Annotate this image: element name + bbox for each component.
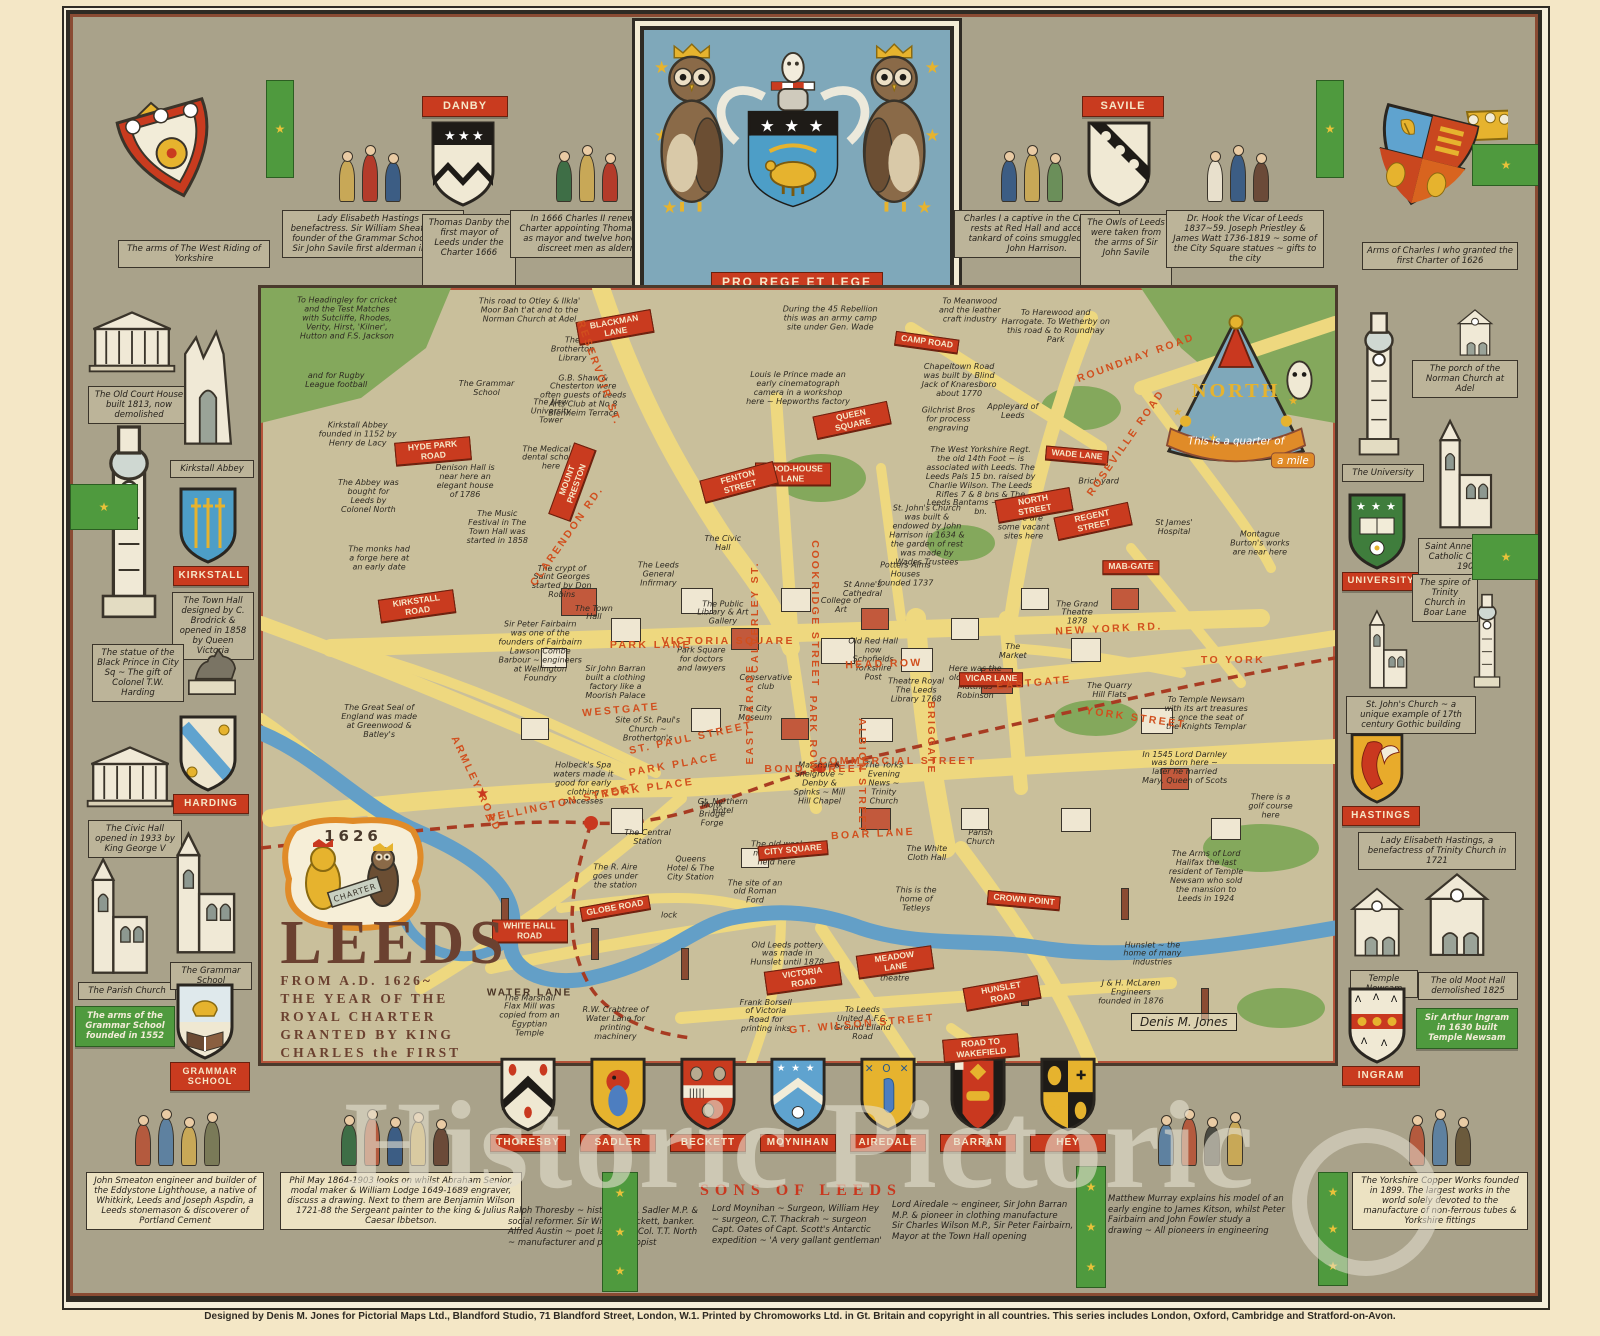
map-note: The Grammar School <box>459 380 515 398</box>
building-block <box>861 608 889 630</box>
svg-text:✚: ✚ <box>1051 1100 1062 1115</box>
west-riding-arms <box>110 92 240 234</box>
map-note: To Headingley for cricket and the Test M… <box>295 297 399 342</box>
harding-shield <box>177 714 239 792</box>
border-band: The arms of The West Riding of Yorkshire… <box>70 14 1538 1296</box>
map-note: Frank Borsell of Victoria Road for print… <box>735 999 797 1035</box>
svg-text:Λ: Λ <box>1373 993 1380 1003</box>
map-note: This road to Otley & Ilkla' Moor Bah t'a… <box>474 298 586 325</box>
map-note: The Market <box>991 643 1035 661</box>
imprint-line: Designed by Denis M. Jones for Pictorial… <box>204 1311 1395 1322</box>
building-block <box>681 948 689 980</box>
kirkstall-shield <box>177 486 239 564</box>
parish-church-drawing <box>78 852 158 982</box>
map-note: To Harewood and Harrogate. To Wetherby o… <box>1000 309 1112 345</box>
copper-works-caption: The Yorkshire Copper Works founded in 18… <box>1352 1172 1528 1230</box>
harding-banner: HARDING <box>173 794 249 814</box>
street-label: HEAD ROW <box>845 657 923 672</box>
map-note: St. John's Church was built & endowed by… <box>886 505 968 568</box>
moot-hall-caption: The old Moot Hall demolished 1825 <box>1418 972 1518 1000</box>
building-block <box>1121 888 1129 920</box>
map-note: St James' Hospital <box>1146 519 1202 537</box>
owl-supporter-left <box>662 44 722 211</box>
black-prince-caption: The statue of the Black Prince in City S… <box>92 644 184 702</box>
map-subtitle-line: CHARLES the FIRST <box>280 1044 508 1062</box>
leeds-crest-panel: ★ ★ ★ ★ ★ ★ ★★★ <box>640 26 954 292</box>
adel-porch-drawing <box>1446 304 1504 358</box>
svg-text:✕: ✕ <box>865 1062 874 1075</box>
charles-captive-figures <box>962 106 1102 202</box>
svg-text:★: ★ <box>809 117 824 136</box>
svg-text:|||||: ||||| <box>689 1088 705 1099</box>
map-note: Hunslet ~ the home of many industries <box>1121 941 1183 968</box>
map-note: and for Rugby League football <box>301 372 371 390</box>
map-note: The Leeds General Infirmary <box>632 561 684 588</box>
building-block <box>781 718 809 740</box>
map-subtitle-line: THE YEAR OF THE <box>280 990 508 1008</box>
map-note: The Central Station <box>623 829 673 847</box>
green-tab: ★ <box>70 484 138 530</box>
owl-supporter-right <box>864 44 924 211</box>
green-tab: ★ <box>266 80 294 178</box>
map-note: The Public Library & Art Gallery <box>692 600 754 627</box>
son-shield-banner: HEY <box>1030 1134 1106 1152</box>
map-note: The Arms of Lord Halifax the last reside… <box>1165 850 1247 904</box>
smeaton-caption: John Smeaton engineer and builder of the… <box>86 1172 264 1230</box>
map-note: Gilchrist Bros for process engraving <box>920 406 976 433</box>
temple-newsam-drawing <box>1348 870 1406 970</box>
svg-text:★: ★ <box>777 1063 786 1074</box>
svg-text:✕: ✕ <box>900 1062 909 1075</box>
map-note: The Great Seal of England was made at Gr… <box>340 704 418 740</box>
svg-text:★: ★ <box>458 129 470 144</box>
svg-text:Λ: Λ <box>1361 1037 1368 1047</box>
son-shield-banner: THORESBY <box>490 1134 566 1152</box>
artists-figures <box>285 1066 505 1166</box>
svg-text:★: ★ <box>472 129 484 144</box>
street-label: COMMERCIAL STREET <box>819 755 976 767</box>
green-star-tab: ★★★ <box>1318 1172 1348 1286</box>
map-note: The White Cloth Hall <box>901 845 953 863</box>
savile-shield <box>1086 120 1152 208</box>
st-johns-drawing <box>1352 606 1422 694</box>
map-note: This is the home of Tetleys <box>891 887 941 914</box>
son-shield-sadler: SADLER <box>580 1056 656 1152</box>
svg-text:Λ: Λ <box>1355 995 1362 1005</box>
danby-caption: Thomas Danby the first mayor of Leeds un… <box>422 214 516 286</box>
star-marker: ★ <box>476 784 489 802</box>
statues-caption: Dr. Hook the Vicar of Leeds 1837~59. Jos… <box>1166 210 1324 268</box>
st-annes-drawing <box>1422 414 1506 536</box>
son-shield-barran: BARRAN <box>940 1056 1016 1152</box>
map-subtitle-line: GRANTED BY KING <box>280 1026 508 1044</box>
svg-text:★: ★ <box>806 1063 815 1074</box>
son-shield-airedale: ✕O✕AIREDALE <box>850 1056 926 1152</box>
danby-shield: ★★★ <box>430 120 496 208</box>
map-note: Louis le Prince made an early cinematogr… <box>746 371 850 407</box>
svg-text:★: ★ <box>760 117 775 136</box>
moot-hall-drawing <box>1422 852 1492 972</box>
map-note: Montague Burton's works are near here <box>1226 530 1294 557</box>
street-label: TO YORK <box>1201 654 1265 666</box>
ingram-ribbon: Sir Arthur Ingram in 1630 built Temple N… <box>1416 1008 1518 1049</box>
svg-text:★: ★ <box>1356 500 1366 513</box>
st-johns-caption: St. John's Church ~ a unique example of … <box>1346 696 1476 734</box>
son-shield-banner: AIREDALE <box>850 1134 926 1152</box>
svg-text:O: O <box>882 1062 890 1075</box>
civic-hall-drawing <box>84 736 176 816</box>
son-shield-beckett: |||||BECKETT <box>670 1056 746 1152</box>
svg-text:★: ★ <box>791 1063 800 1074</box>
map-note: Sir Peter Fairbairn was one of the found… <box>498 621 582 684</box>
green-tab: ★ <box>1472 534 1538 580</box>
svg-text:★: ★ <box>444 129 456 144</box>
west-riding-caption: The arms of The West Riding of Yorkshire <box>118 240 270 268</box>
murray-column: Matthew Murray explains his model of an … <box>1108 1194 1286 1237</box>
map-note: The Music Festival in The Town Hall was … <box>462 510 532 546</box>
grammar-school-drawing <box>166 826 242 962</box>
building-block <box>781 588 811 612</box>
map-note: The site of an old Roman Ford <box>727 879 783 906</box>
benefactors-figures <box>295 106 445 202</box>
green-tab: ★ <box>1316 80 1344 178</box>
svg-text:Λ: Λ <box>1381 1039 1388 1049</box>
son-shield-thoresby: THORESBY <box>490 1056 566 1152</box>
building-block <box>961 808 989 830</box>
artist-signature: Denis M. Jones <box>1131 1013 1237 1031</box>
map-note: J & H. McLaren Engineers founded in 1876 <box>1095 980 1167 1007</box>
hastings-shield <box>1346 732 1408 804</box>
map-note: Sir John Barran built a clothing factory… <box>584 665 646 701</box>
grammar-school-shield <box>174 982 236 1060</box>
green-tab: ★ <box>1472 144 1538 186</box>
map-note: The Civic Hall <box>700 535 746 553</box>
map-note: Chapeltown Road was built by Blind Jack … <box>918 363 1000 399</box>
svg-text:NORTH: NORTH <box>1192 380 1281 402</box>
svg-text:★: ★ <box>1386 500 1396 513</box>
map-note: Gt. Northern Hotel <box>695 798 751 816</box>
building-block <box>1071 638 1101 662</box>
map-note: Park Square for doctors and lawyers <box>674 647 728 674</box>
svg-text:This is a quarter of: This is a quarter of <box>1188 436 1286 448</box>
son-shield-banner: BECKETT <box>670 1134 746 1152</box>
svg-text:★: ★ <box>1371 500 1381 513</box>
map-note: Parish Church <box>959 829 1003 847</box>
map-title-block: LEEDS FROM A.D. 1626~THE YEAR OF THEROYA… <box>280 916 508 1063</box>
university-shield: ★★★ <box>1346 492 1408 570</box>
map-title: LEEDS <box>280 916 508 972</box>
map-note: College of Art <box>819 597 863 615</box>
phil-may-caption: Phil May 1864-1903 looks on whilst Abrah… <box>280 1172 522 1230</box>
building-block <box>521 718 549 740</box>
building-block <box>1111 588 1139 610</box>
danby-banner: DANBY <box>422 96 508 117</box>
svg-text:★: ★ <box>1173 406 1183 419</box>
stonemasons-figures <box>92 1076 262 1166</box>
building-block <box>1021 588 1049 610</box>
charles-arms-caption: Arms of Charles I who granted the first … <box>1362 242 1518 270</box>
street-label: COOKRIDGE STREET <box>809 540 821 688</box>
green-star-tab: ★★★ <box>602 1172 638 1292</box>
ingram-shield: ΛΛΛΛΛ <box>1346 986 1408 1064</box>
leeds-coat-of-arms: ★★★ <box>647 36 939 246</box>
sons-column-3: Lord Airedale ~ engineer, Sir John Barra… <box>892 1200 1074 1243</box>
map-note: The Abbey was bought for Leeds by Colone… <box>336 479 400 515</box>
street-label: ALBION STREET <box>856 718 868 834</box>
building-block <box>1061 808 1091 832</box>
sons-of-leeds-title: SONS OF LEEDS <box>700 1182 902 1200</box>
map-subtitle-line: ROYAL CHARTER <box>280 1008 508 1026</box>
street-label: PARK ROW <box>807 695 819 772</box>
city-map: BLACKMAN LANECAMP ROADQUEEN SQUAREWOOD-H… <box>258 285 1338 1066</box>
svg-text:✚: ✚ <box>1076 1068 1087 1083</box>
university-banner: UNIVERSITY <box>1342 572 1420 591</box>
sons-column-2: Lord Moynihan ~ Surgeon, William Hey ~ s… <box>712 1204 884 1247</box>
map-note: The monks had a forge here at an early d… <box>347 546 411 573</box>
street-label: EAST PARADE <box>744 664 756 765</box>
university-caption: The University <box>1342 464 1424 482</box>
street-label: MAB-GATE <box>1102 560 1159 574</box>
hastings-banner: HASTINGS <box>1342 806 1420 826</box>
map-note: The Quarry Hill Flats <box>1080 682 1138 700</box>
son-shield-banner: SADLER <box>580 1134 656 1152</box>
son-shield-hey: ✚✚HEY <box>1030 1056 1106 1152</box>
kirkstall-banner: KIRKSTALL <box>173 566 249 586</box>
map-note: In 1545 Lord Darnley was born here ~ lat… <box>1142 751 1228 787</box>
copper-works-figures <box>1370 1066 1510 1166</box>
statues-figures <box>1172 106 1304 202</box>
map-note: There is a golf course here <box>1246 794 1296 821</box>
parish-church-caption: The Parish Church <box>78 982 176 1000</box>
adel-porch-caption: The porch of the Norman Church at Adel <box>1412 360 1518 398</box>
map-note: St Anne's Cathedral <box>834 581 890 599</box>
building-block <box>1211 818 1241 840</box>
map-note: To Meanwood and the leather craft indust… <box>935 298 1005 325</box>
building-block <box>951 618 979 640</box>
map-note: R.W. Crabtree of Water Lane for printing… <box>578 1006 652 1042</box>
pictorial-map-poster: The arms of The West Riding of Yorkshire… <box>0 0 1600 1336</box>
map-note: Kirkstall Abbey founded in 1152 by Henry… <box>318 422 398 449</box>
son-shield-moynihan: ★★★MOYNIHAN <box>760 1056 836 1152</box>
green-star-tab: ★★★ <box>1076 1166 1106 1288</box>
svg-text:★: ★ <box>784 117 799 136</box>
street-label: PARK LANE <box>610 639 692 651</box>
son-shield-banner: BARRAN <box>940 1134 1016 1152</box>
map-note: Denison Hall is near here an elegant hou… <box>432 464 498 500</box>
svg-text:a mile: a mile <box>1278 455 1310 467</box>
kirkstall-abbey-caption: Kirkstall Abbey <box>170 460 254 478</box>
kirkstall-abbey-drawing <box>176 314 240 458</box>
savile-banner: SAVILE <box>1082 96 1164 117</box>
savile-caption: The Owls of Leeds were taken from the ar… <box>1080 214 1172 286</box>
grammar-arms-ribbon: The arms of the Grammar School founded i… <box>75 1006 175 1047</box>
charter-scene-figures <box>518 106 656 202</box>
son-shield-banner: MOYNIHAN <box>760 1134 836 1152</box>
old-court-house-drawing <box>86 298 178 384</box>
black-prince-statue-drawing <box>182 630 242 700</box>
map-note: Queens Hotel & The City Station <box>664 856 718 883</box>
map-note: The Town Hall <box>571 605 617 623</box>
map-note: lock <box>654 911 684 920</box>
engineers-figures <box>1110 1066 1290 1166</box>
university-drawing <box>1350 300 1408 462</box>
svg-text:Λ: Λ <box>1391 995 1398 1005</box>
map-note: During the 45 Rebellion this was an army… <box>779 306 881 333</box>
building-block <box>591 928 599 960</box>
street-label: CALVERLEY ST. <box>749 561 761 673</box>
map-note: The New University Tower <box>521 399 581 426</box>
map-note: Appleyard of Leeds <box>985 403 1041 421</box>
map-note: The R. Aire goes under the station <box>585 864 645 891</box>
